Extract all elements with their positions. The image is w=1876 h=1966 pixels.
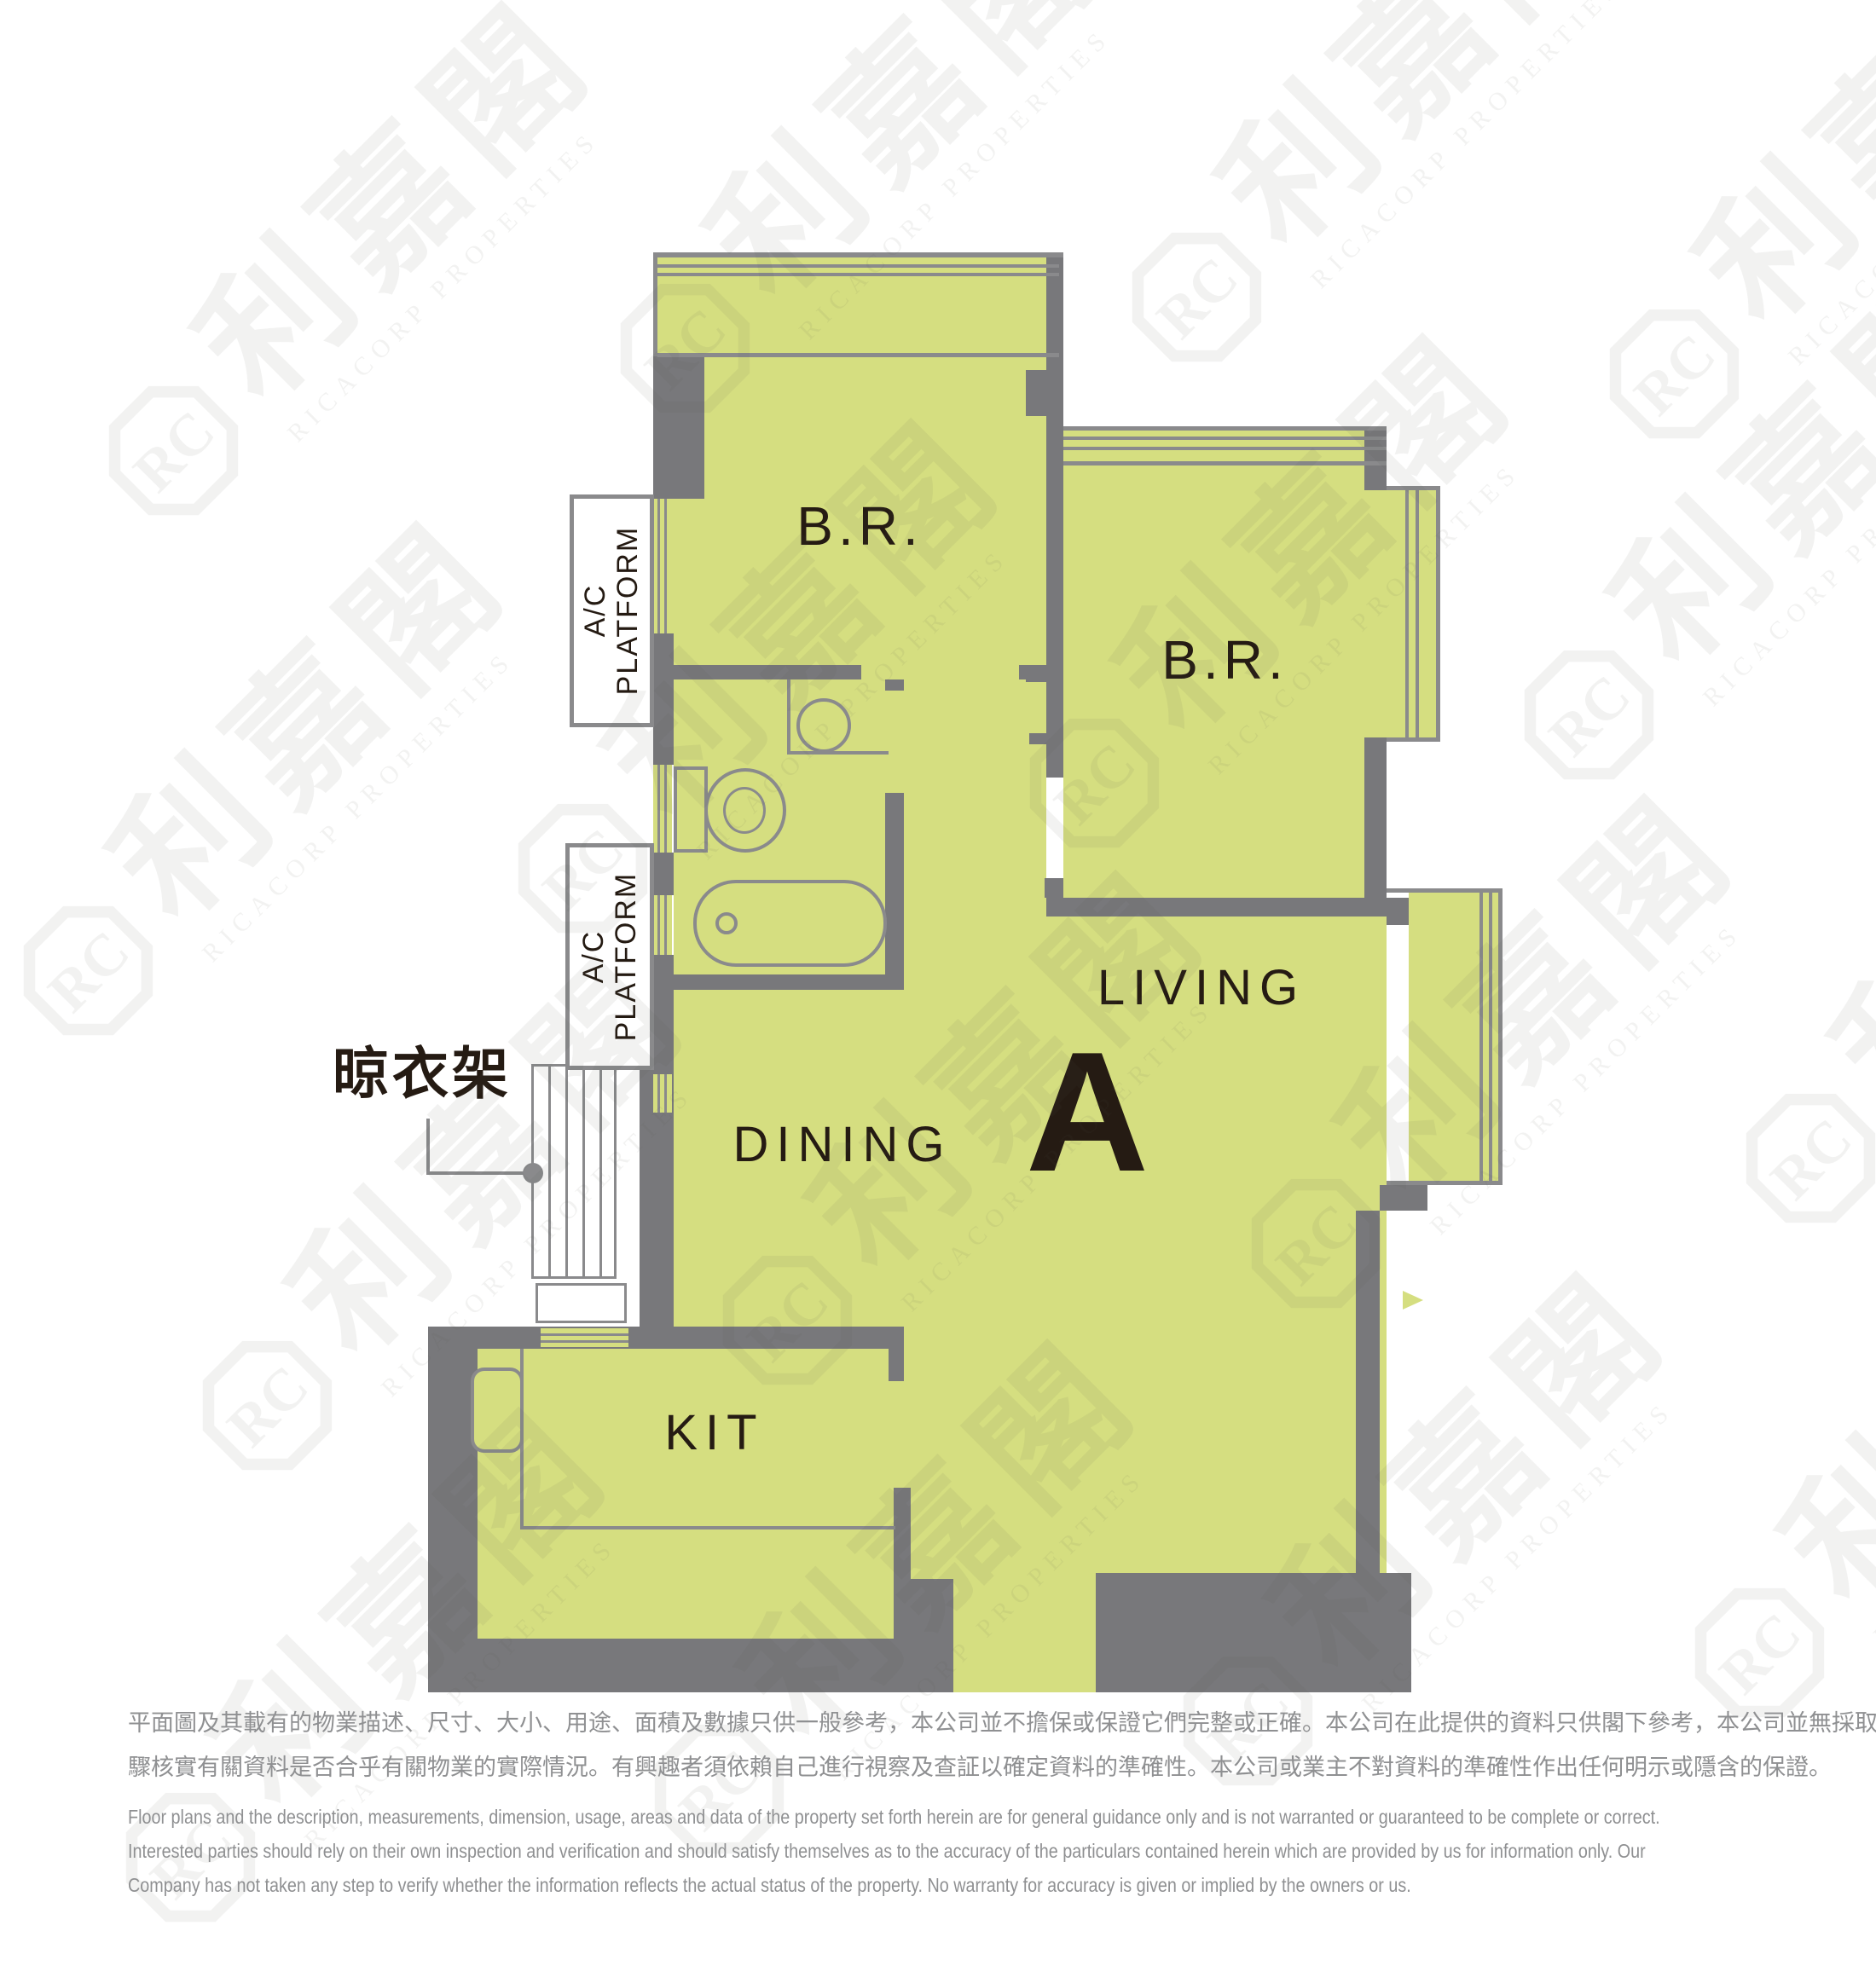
floor-plan-canvas: A/C PLATFORM A/C PLATFORM 晾衣架 B.R. B.R. …: [0, 0, 1876, 1876]
disclaimer-cn-line2: 驟核實有關資料是否合乎有關物業的實際情況。有興趣者須依賴自己進行視察及查証以確定…: [128, 1745, 1833, 1790]
bathtub-drain: [715, 912, 738, 934]
bedroom-2-window-sill: [1063, 461, 1387, 465]
watermark: RC 利嘉閣RICACORP PROPERTIES: [0, 498, 561, 1079]
bay-window-glazing: [657, 273, 1059, 276]
living-bay-window-line: [1498, 888, 1503, 1185]
svg-text:RC: RC: [121, 398, 227, 504]
living-right-wall: [1356, 1211, 1380, 1579]
bedroom-2-left-wall: [1046, 682, 1063, 778]
disclaimer-cn-line1: 平面圖及其載有的物業描述、尺寸、大小、用途、面積及數據只供一般參考，本公司並不擔…: [128, 1701, 1833, 1745]
side-window-cap: [1387, 486, 1440, 490]
disclaimer-en-line1: Floor plans and the description, measure…: [128, 1800, 1595, 1834]
bay-window-line: [653, 252, 657, 356]
kitchen-counter-edge: [520, 1526, 895, 1529]
watermark: RC 利嘉閣RICACORP PROPERTIES: [65, 0, 646, 559]
svg-text:RC: RC: [36, 918, 142, 1024]
side-window-glazing: [1416, 490, 1419, 737]
drying-rack-bar: [582, 1067, 585, 1276]
ricacorp-logo-icon: RC: [1584, 283, 1764, 464]
drying-rack-bar: [548, 1067, 551, 1276]
dining-label: DINING: [672, 1120, 1013, 1170]
wall-segment: [653, 356, 704, 499]
kitchen-louvre-line: [541, 1333, 628, 1336]
wall-segment: [653, 682, 674, 765]
bathroom-counter-edge: [787, 679, 790, 755]
callout-line: [426, 1119, 430, 1175]
toilet-tank: [674, 766, 708, 853]
side-window-glazing: [1405, 490, 1409, 737]
drying-rack-base: [536, 1283, 627, 1323]
ac-platform-1-label: A/C PLATFORM: [579, 526, 644, 696]
wall-segment: [889, 1349, 904, 1381]
bedroom-1-area: [657, 257, 1059, 665]
disclaimer-en-line3: Company has not taken any step to verify…: [128, 1868, 1595, 1902]
bedroom-2-bottom-wall: [1046, 898, 1387, 917]
watermark: RC 利嘉閣RICACORP PROPERTIES: [1480, 242, 1876, 824]
svg-text:RC: RC: [215, 1353, 321, 1459]
svg-text:RC: RC: [1707, 1600, 1813, 1706]
bedroom-2-window-glazing: [1063, 437, 1387, 440]
kitchen-top-wall: [428, 1327, 904, 1349]
bedroom-2-window-line: [1063, 426, 1387, 431]
kitchen-louvre-window: [541, 1328, 628, 1347]
wall-segment: [1387, 898, 1409, 925]
svg-text:RC: RC: [1622, 321, 1728, 427]
bedroom-1-right-wall: [1046, 252, 1063, 682]
bedroom-2-right-wall: [1364, 737, 1387, 898]
wall-segment: [1026, 667, 1046, 682]
bathroom-counter-edge: [787, 751, 889, 755]
living-bay-window-line: [1387, 888, 1503, 893]
wall-segment: [1026, 370, 1046, 416]
ac-platform-2: A/C PLATFORM: [565, 843, 654, 1070]
side-window-cap: [1387, 737, 1440, 742]
watermark: RC 利嘉閣RICACORP PROPERTIES: [1566, 0, 1876, 483]
wash-basin: [796, 698, 851, 753]
bathroom-right-wall: [885, 679, 904, 691]
ricacorp-logo-icon: RC: [83, 360, 263, 541]
bedroom-2-window-strip: [1387, 490, 1439, 737]
ricacorp-logo-icon: RC: [1106, 206, 1287, 387]
ricacorp-logo-icon: RC: [1720, 1067, 1876, 1248]
wall-segment: [1380, 1185, 1427, 1211]
bedroom-1-window-sill: [657, 353, 1059, 357]
side-window-line: [1436, 490, 1440, 737]
callout-line: [426, 1171, 530, 1175]
drying-rack-bar: [599, 1067, 602, 1276]
bay-window-line: [653, 252, 1063, 257]
kitchen-area: [478, 1349, 911, 1639]
drying-rack-label: 晾衣架: [333, 1045, 512, 1102]
bathroom-top-wall: [674, 665, 861, 679]
kitchen-bottom-wall: [428, 1639, 953, 1692]
louvre-window: [653, 765, 672, 853]
entrance-door-opening: [953, 1579, 1096, 1692]
svg-text:RC: RC: [1537, 662, 1642, 768]
unit-letter: A: [1010, 1027, 1164, 1198]
living-bay-window-glazing: [1479, 893, 1483, 1181]
disclaimer: 平面圖及其載有的物業描述、尺寸、大小、用途、面積及數據只供一般參考，本公司並不擔…: [128, 1701, 1833, 1902]
ac-platform-1: A/C PLATFORM: [570, 494, 654, 727]
bathroom-right-wall: [885, 793, 904, 974]
living-bay-window-line: [1387, 1181, 1503, 1185]
bedroom-2-label: B.R.: [1063, 633, 1387, 687]
bottom-right-wall: [1096, 1573, 1411, 1692]
wall-segment: [653, 853, 674, 895]
kitchen-label: KIT: [529, 1408, 900, 1458]
door-frame-stub: [1029, 733, 1062, 744]
drying-rack-bar: [565, 1067, 568, 1276]
ac-platform-2-label: A/C PLATFORM: [577, 872, 642, 1042]
ricacorp-logo-icon: RC: [1498, 624, 1679, 805]
wall-segment: [894, 1579, 953, 1639]
bedroom-2-window-glazing: [1063, 447, 1387, 450]
svg-text:RC: RC: [1758, 1106, 1864, 1211]
bay-window-glazing: [657, 264, 1059, 268]
toilet-bowl-inner: [723, 787, 766, 834]
disclaimer-en-line2: Interested parties should rely on their …: [128, 1834, 1595, 1868]
kitchen-louvre-line: [541, 1340, 628, 1343]
callout-dot: [523, 1163, 543, 1183]
bedroom-1-label: B.R.: [674, 499, 1046, 553]
louvre-window: [653, 1074, 672, 1113]
decorative-triangle: [1403, 1291, 1423, 1310]
svg-text:RC: RC: [1144, 245, 1250, 350]
living-bay-window-glazing: [1489, 893, 1492, 1181]
living-label: LIVING: [1031, 963, 1372, 1013]
wall-segment: [1045, 878, 1063, 898]
watermark: RC 利嘉閣RICACORP PROPERTIES: [1702, 685, 1876, 1267]
louvre-window: [653, 499, 672, 633]
watermark: RC 利嘉閣RICACORP PROPERTIES: [1088, 0, 1670, 406]
kitchen-right-wall: [894, 1488, 911, 1579]
ricacorp-logo-icon: RC: [0, 880, 179, 1061]
watermark: RC 利嘉閣RICACORP PROPERTIES: [1651, 1180, 1876, 1761]
louvre-window: [653, 895, 672, 955]
bathroom-bottom-wall: [640, 974, 904, 990]
living-room-area: [904, 917, 1387, 1579]
drying-rack: [531, 1064, 617, 1279]
kitchen-sink: [471, 1368, 524, 1453]
ricacorp-logo-icon: RC: [177, 1315, 357, 1495]
